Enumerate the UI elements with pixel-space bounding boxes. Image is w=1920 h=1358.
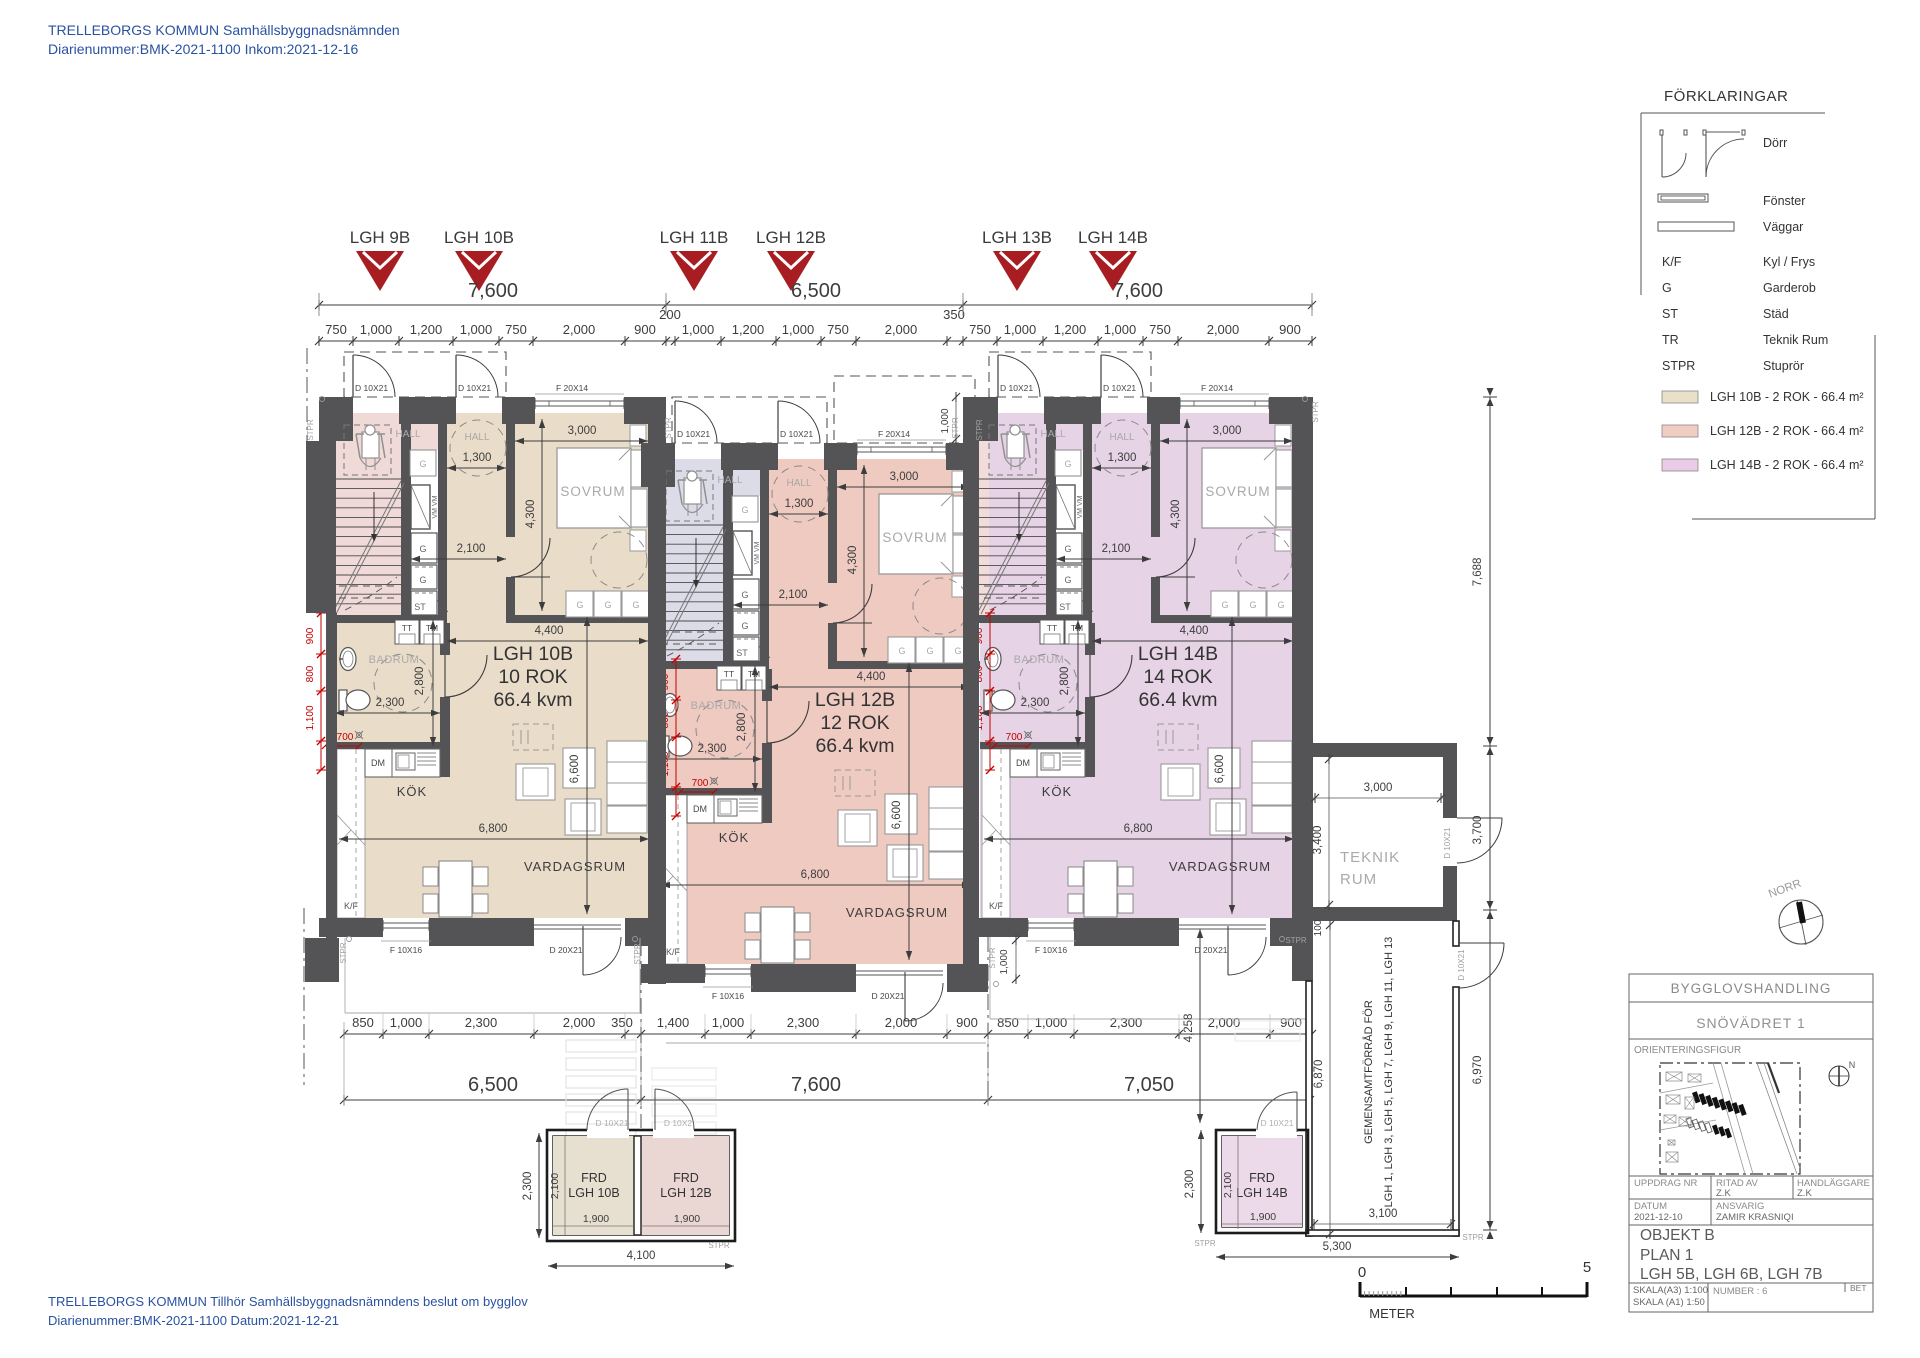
svg-text:3,000: 3,000: [568, 425, 597, 437]
svg-text:2,100: 2,100: [1102, 543, 1131, 555]
svg-text:LGH 11B: LGH 11B: [660, 228, 729, 247]
svg-text:LGH 5B, LGH 6B, LGH 7B: LGH 5B, LGH 6B, LGH 7B: [1640, 1266, 1823, 1283]
svg-text:BADRUM: BADRUM: [369, 654, 420, 666]
svg-text:1,000: 1,000: [460, 322, 493, 337]
svg-text:2,800: 2,800: [414, 667, 426, 696]
svg-text:ZAMIR KRASNIQI: ZAMIR KRASNIQI: [1716, 1212, 1794, 1223]
svg-text:BET: BET: [1850, 1283, 1867, 1293]
svg-text:1,000: 1,000: [682, 322, 715, 337]
svg-text:900: 900: [305, 627, 316, 644]
svg-text:STPR: STPR: [1311, 401, 1320, 423]
svg-text:4,258: 4,258: [1183, 1014, 1195, 1043]
svg-text:750: 750: [1149, 322, 1171, 337]
svg-text:1,100: 1,100: [305, 705, 316, 730]
svg-text:F 10X16: F 10X16: [390, 945, 422, 955]
svg-text:G: G: [1221, 600, 1228, 610]
svg-text:1,000: 1,000: [390, 1015, 423, 1030]
svg-text:LGH 12B - 2 ROK - 66.4 m²: LGH 12B - 2 ROK - 66.4 m²: [1710, 424, 1864, 438]
svg-text:14 ROK: 14 ROK: [1143, 666, 1212, 688]
svg-text:DM: DM: [1016, 758, 1030, 768]
svg-text:6,600: 6,600: [891, 801, 903, 830]
svg-text:6,970: 6,970: [1472, 1056, 1484, 1085]
svg-text:0: 0: [1358, 1264, 1366, 1281]
svg-text:LGH 14B: LGH 14B: [1138, 643, 1218, 665]
svg-text:800: 800: [305, 665, 316, 682]
svg-text:2,100: 2,100: [457, 543, 486, 555]
svg-text:Z.K: Z.K: [1797, 1188, 1812, 1199]
svg-text:TT: TT: [1047, 623, 1057, 633]
svg-text:LGH 1, LGH 3, LGH 5, LGH 7, LG: LGH 1, LGH 3, LGH 5, LGH 7, LGH 9, LGH 1…: [1383, 937, 1395, 1208]
svg-text:2,000: 2,000: [885, 1015, 918, 1030]
svg-text:G: G: [1249, 600, 1256, 610]
svg-text:Fönster: Fönster: [1763, 194, 1805, 208]
svg-text:ST: ST: [1662, 307, 1678, 321]
svg-text:750: 750: [505, 322, 527, 337]
svg-text:TEKNIK: TEKNIK: [1340, 849, 1400, 866]
svg-text:1,400: 1,400: [657, 1015, 690, 1030]
svg-text:Garderob: Garderob: [1763, 281, 1816, 295]
svg-text:Städ: Städ: [1763, 307, 1789, 321]
svg-text:D 10X21: D 10X21: [1457, 949, 1466, 981]
svg-text:850: 850: [352, 1015, 374, 1030]
svg-text:STPR: STPR: [988, 947, 997, 969]
svg-text:4,100: 4,100: [627, 1250, 656, 1262]
svg-text:2,100: 2,100: [779, 589, 808, 601]
svg-text:1,900: 1,900: [583, 1213, 609, 1225]
svg-text:STPR: STPR: [975, 419, 984, 441]
svg-text:1,000: 1,000: [782, 322, 815, 337]
svg-text:UPPDRAG NR: UPPDRAG NR: [1634, 1178, 1697, 1189]
svg-text:700: 700: [337, 732, 354, 743]
svg-text:1,300: 1,300: [785, 498, 814, 510]
svg-text:LGH 10B: LGH 10B: [444, 228, 514, 247]
svg-text:LGH 13B: LGH 13B: [982, 228, 1052, 247]
svg-text:N: N: [1849, 1060, 1856, 1070]
svg-text:G: G: [741, 621, 748, 631]
svg-text:1,000: 1,000: [1035, 1015, 1068, 1030]
svg-text:3,100: 3,100: [1369, 1208, 1398, 1220]
svg-text:VM VM: VM VM: [754, 541, 761, 564]
svg-text:350: 350: [611, 1015, 633, 1030]
svg-text:FRD: FRD: [581, 1171, 607, 1185]
svg-text:Teknik Rum: Teknik Rum: [1763, 333, 1828, 347]
svg-text:STPR: STPR: [1194, 1239, 1216, 1248]
svg-text:4,400: 4,400: [535, 625, 564, 637]
svg-text:G: G: [632, 600, 639, 610]
svg-text:D 10X21: D 10X21: [458, 383, 491, 393]
svg-text:1,000: 1,000: [940, 408, 951, 433]
svg-text:700: 700: [692, 778, 709, 789]
svg-text:7,050: 7,050: [1124, 1074, 1174, 1096]
svg-text:Väggar: Väggar: [1763, 220, 1803, 234]
svg-text:6,800: 6,800: [1124, 823, 1153, 835]
svg-text:1,000: 1,000: [1004, 322, 1037, 337]
svg-text:1,900: 1,900: [1250, 1211, 1276, 1223]
svg-text:1,900: 1,900: [674, 1213, 700, 1225]
svg-text:BYGGLOVSHANDLING: BYGGLOVSHANDLING: [1671, 981, 1832, 996]
svg-text:LGH 12B: LGH 12B: [660, 1186, 711, 1200]
svg-text:Stuprör: Stuprör: [1763, 359, 1804, 373]
svg-text:RUM: RUM: [1340, 871, 1377, 888]
svg-text:6,800: 6,800: [801, 869, 830, 881]
svg-text:2,800: 2,800: [1059, 667, 1071, 696]
svg-text:66.4 kvm: 66.4 kvm: [493, 689, 572, 711]
svg-text:3,400: 3,400: [1312, 826, 1324, 855]
svg-text:DATUM: DATUM: [1634, 1201, 1667, 1212]
svg-text:6,600: 6,600: [1214, 755, 1226, 784]
svg-text:STPR: STPR: [951, 417, 960, 439]
svg-text:LGH 14B: LGH 14B: [1236, 1186, 1287, 1200]
svg-text:1,200: 1,200: [732, 322, 765, 337]
svg-text:2,300: 2,300: [1021, 697, 1050, 709]
svg-text:STPR: STPR: [664, 417, 673, 439]
svg-text:TRELLEBORGS KOMMUN Samhällsbyg: TRELLEBORGS KOMMUN Samhällsbyggnadsnämnd…: [48, 22, 400, 38]
svg-text:D 20X21: D 20X21: [549, 945, 582, 955]
svg-text:G: G: [926, 646, 933, 656]
svg-text:STPR: STPR: [708, 1241, 730, 1250]
svg-text:OBJEKT B: OBJEKT B: [1640, 1227, 1715, 1244]
svg-text:D 20X21: D 20X21: [1194, 945, 1227, 955]
svg-text:6,600: 6,600: [569, 755, 581, 784]
svg-text:SOVRUM: SOVRUM: [882, 530, 947, 545]
svg-text:SNÖVÄDRET 1: SNÖVÄDRET 1: [1696, 1014, 1806, 1031]
svg-text:850: 850: [997, 1015, 1019, 1030]
svg-text:900: 900: [634, 322, 656, 337]
svg-text:ORIENTERINGSFIGUR: ORIENTERINGSFIGUR: [1634, 1045, 1741, 1056]
svg-text:G: G: [954, 646, 961, 656]
svg-text:900: 900: [1279, 322, 1301, 337]
svg-text:G: G: [1662, 281, 1672, 295]
svg-text:7,600: 7,600: [468, 280, 518, 302]
svg-text:750: 750: [325, 322, 347, 337]
svg-text:3,000: 3,000: [1364, 782, 1393, 794]
svg-text:SKALA(A3) 1:100: SKALA(A3) 1:100: [1633, 1285, 1708, 1296]
svg-text:SOVRUM: SOVRUM: [1205, 484, 1270, 499]
svg-text:1,200: 1,200: [410, 322, 443, 337]
svg-text:2,000: 2,000: [563, 322, 596, 337]
svg-text:5: 5: [1583, 1259, 1591, 1276]
svg-text:6,500: 6,500: [791, 280, 841, 302]
svg-text:F 20X14: F 20X14: [878, 429, 910, 439]
svg-text:G: G: [419, 459, 426, 469]
svg-text:12 ROK: 12 ROK: [820, 712, 889, 734]
svg-text:10 ROK: 10 ROK: [498, 666, 567, 688]
svg-text:2,100: 2,100: [549, 1173, 561, 1199]
svg-text:100: 100: [1313, 919, 1324, 936]
svg-text:200: 200: [659, 307, 681, 322]
svg-text:Diarienummer:BMK-2021-1100 Dat: Diarienummer:BMK-2021-1100 Datum:2021-12…: [48, 1313, 339, 1328]
svg-text:DM: DM: [693, 804, 707, 814]
svg-text:3,000: 3,000: [1213, 425, 1242, 437]
svg-text:G: G: [576, 600, 583, 610]
svg-text:2021-12-10: 2021-12-10: [1634, 1212, 1683, 1223]
svg-text:900: 900: [1280, 1015, 1302, 1030]
svg-text:ST: ST: [736, 648, 748, 658]
svg-text:7,600: 7,600: [1113, 280, 1163, 302]
svg-text:6,870: 6,870: [1313, 1060, 1325, 1089]
svg-text:750: 750: [827, 322, 849, 337]
svg-text:K/F: K/F: [344, 901, 359, 911]
svg-text:Diarienummer:BMK-2021-1100 Ink: Diarienummer:BMK-2021-1100 Inkom:2021-12…: [48, 41, 358, 57]
svg-text:D 10X21: D 10X21: [677, 429, 710, 439]
svg-text:6,800: 6,800: [479, 823, 508, 835]
svg-text:4,300: 4,300: [847, 546, 859, 575]
svg-text:ANSVARIG: ANSVARIG: [1716, 1201, 1764, 1212]
svg-text:D 10X21: D 10X21: [1260, 1118, 1293, 1128]
svg-text:2,100: 2,100: [1222, 1172, 1234, 1198]
svg-text:7,688: 7,688: [1472, 558, 1484, 587]
svg-text:D 10X21: D 10X21: [780, 429, 813, 439]
svg-text:STPR: STPR: [1462, 1233, 1484, 1242]
svg-text:2,300: 2,300: [1110, 1015, 1143, 1030]
svg-text:HALL: HALL: [717, 475, 742, 486]
svg-text:2,300: 2,300: [376, 697, 405, 709]
svg-text:G: G: [1064, 459, 1071, 469]
svg-text:D 10X21: D 10X21: [1443, 827, 1452, 859]
svg-text:G: G: [1064, 575, 1071, 585]
svg-text:2,300: 2,300: [1184, 1170, 1196, 1199]
svg-text:G: G: [1064, 544, 1071, 554]
svg-text:FRD: FRD: [673, 1171, 699, 1185]
svg-text:F 10X16: F 10X16: [712, 991, 744, 1001]
svg-text:2,000: 2,000: [885, 322, 918, 337]
svg-text:STPR: STPR: [1285, 936, 1307, 945]
svg-text:G: G: [419, 544, 426, 554]
svg-text:GEMENSAMTFÖRRÅD FÖR: GEMENSAMTFÖRRÅD FÖR: [1362, 1000, 1375, 1144]
svg-text:K/F: K/F: [989, 901, 1004, 911]
svg-text:F 10X16: F 10X16: [1035, 945, 1067, 955]
svg-text:LGH 9B: LGH 9B: [350, 228, 410, 247]
svg-text:66.4 kvm: 66.4 kvm: [815, 735, 894, 757]
svg-text:G: G: [741, 505, 748, 515]
svg-text:K/F: K/F: [1662, 255, 1682, 269]
svg-text:LGH 12B: LGH 12B: [815, 689, 895, 711]
svg-text:Z.K: Z.K: [1716, 1188, 1731, 1199]
svg-text:K/F: K/F: [666, 947, 681, 957]
svg-text:FÖRKLARINGAR: FÖRKLARINGAR: [1664, 87, 1788, 105]
svg-text:4,400: 4,400: [1180, 625, 1209, 637]
svg-text:STPR: STPR: [1662, 359, 1695, 373]
svg-text:PLAN 1: PLAN 1: [1640, 1247, 1693, 1264]
svg-text:2,000: 2,000: [563, 1015, 596, 1030]
svg-text:1,300: 1,300: [463, 452, 492, 464]
svg-text:Kyl / Frys: Kyl / Frys: [1763, 255, 1815, 269]
svg-text:BADRUM: BADRUM: [1014, 654, 1065, 666]
svg-text:VARDAGSRUM: VARDAGSRUM: [524, 859, 626, 874]
svg-text:700: 700: [1006, 732, 1023, 743]
svg-text:5,300: 5,300: [1323, 1241, 1352, 1253]
svg-text:KÖK: KÖK: [397, 784, 427, 799]
svg-text:TRELLEBORGS KOMMUN Tillhör Sam: TRELLEBORGS KOMMUN Tillhör Samhällsbyggn…: [48, 1294, 528, 1309]
svg-text:D 20X21: D 20X21: [871, 991, 904, 1001]
svg-text:LGH 12B: LGH 12B: [756, 228, 826, 247]
svg-text:VARDAGSRUM: VARDAGSRUM: [846, 905, 948, 920]
svg-text:TT: TT: [724, 669, 734, 679]
svg-text:4,400: 4,400: [857, 671, 886, 683]
svg-text:D 10X2: D 10X2: [664, 1118, 693, 1128]
svg-text:2,300: 2,300: [522, 1172, 534, 1201]
svg-text:2,300: 2,300: [698, 743, 727, 755]
svg-text:STPR: STPR: [339, 942, 348, 964]
svg-text:2,300: 2,300: [465, 1015, 498, 1030]
svg-text:ST: ST: [1059, 602, 1071, 612]
svg-text:2,000: 2,000: [1207, 322, 1240, 337]
svg-text:F 20X14: F 20X14: [556, 383, 588, 393]
svg-text:LGH 10B: LGH 10B: [568, 1186, 619, 1200]
svg-text:G: G: [419, 575, 426, 585]
svg-text:METER: METER: [1369, 1306, 1415, 1321]
svg-text:HALL: HALL: [1040, 429, 1065, 440]
svg-text:HALL: HALL: [464, 432, 489, 443]
svg-text:LGH 14B - 2 ROK - 66.4 m²: LGH 14B - 2 ROK - 66.4 m²: [1710, 458, 1864, 472]
svg-text:TR: TR: [1662, 333, 1679, 347]
svg-text:BADRUM: BADRUM: [691, 700, 742, 712]
svg-text:750: 750: [969, 322, 991, 337]
svg-text:SOVRUM: SOVRUM: [560, 484, 625, 499]
svg-text:LGH 10B - 2 ROK - 66.4 m²: LGH 10B - 2 ROK - 66.4 m²: [1710, 390, 1864, 404]
svg-text:FRD: FRD: [1249, 1171, 1275, 1185]
svg-text:2,300: 2,300: [787, 1015, 820, 1030]
svg-text:1,000: 1,000: [360, 322, 393, 337]
svg-text:VM VM: VM VM: [432, 495, 439, 518]
svg-text:DM: DM: [371, 758, 385, 768]
svg-text:G: G: [741, 590, 748, 600]
svg-text:3,000: 3,000: [890, 471, 919, 483]
svg-text:F 20X14: F 20X14: [1201, 383, 1233, 393]
svg-text:2,800: 2,800: [736, 713, 748, 742]
svg-text:900: 900: [956, 1015, 978, 1030]
svg-text:G: G: [604, 600, 611, 610]
svg-text:Dörr: Dörr: [1763, 136, 1787, 150]
svg-text:HALL: HALL: [395, 429, 420, 440]
svg-text:1,000: 1,000: [712, 1015, 745, 1030]
svg-text:G: G: [898, 646, 905, 656]
svg-text:350: 350: [943, 307, 965, 322]
svg-text:HALL: HALL: [1109, 432, 1134, 443]
svg-text:D 10X21: D 10X21: [1103, 383, 1136, 393]
svg-text:KÖK: KÖK: [719, 830, 749, 845]
svg-text:VM VM: VM VM: [1077, 495, 1084, 518]
svg-text:1,200: 1,200: [1054, 322, 1087, 337]
svg-text:LGH 14B: LGH 14B: [1078, 228, 1148, 247]
svg-text:1,000: 1,000: [999, 949, 1010, 974]
svg-text:D 10X21: D 10X21: [355, 383, 388, 393]
svg-text:3,700: 3,700: [1472, 816, 1484, 845]
svg-text:D 10X21: D 10X21: [1000, 383, 1033, 393]
svg-text:66.4 kvm: 66.4 kvm: [1138, 689, 1217, 711]
svg-text:NUMBER : 6: NUMBER : 6: [1713, 1286, 1767, 1297]
svg-text:1,300: 1,300: [1108, 452, 1137, 464]
svg-text:6,500: 6,500: [468, 1074, 518, 1096]
svg-text:D 10X21: D 10X21: [595, 1118, 628, 1128]
svg-text:VARDAGSRUM: VARDAGSRUM: [1169, 859, 1271, 874]
svg-text:7,600: 7,600: [791, 1074, 841, 1096]
svg-text:SKALA (A1) 1:50: SKALA (A1) 1:50: [1633, 1297, 1705, 1308]
svg-text:4,300: 4,300: [1170, 500, 1182, 529]
svg-text:TT: TT: [402, 623, 412, 633]
svg-text:ST: ST: [414, 602, 426, 612]
svg-text:G: G: [1277, 600, 1284, 610]
svg-text:LGH 10B: LGH 10B: [493, 643, 573, 665]
svg-text:4,300: 4,300: [525, 500, 537, 529]
svg-text:KÖK: KÖK: [1042, 784, 1072, 799]
svg-text:HALL: HALL: [786, 478, 811, 489]
svg-text:1,000: 1,000: [1104, 322, 1137, 337]
